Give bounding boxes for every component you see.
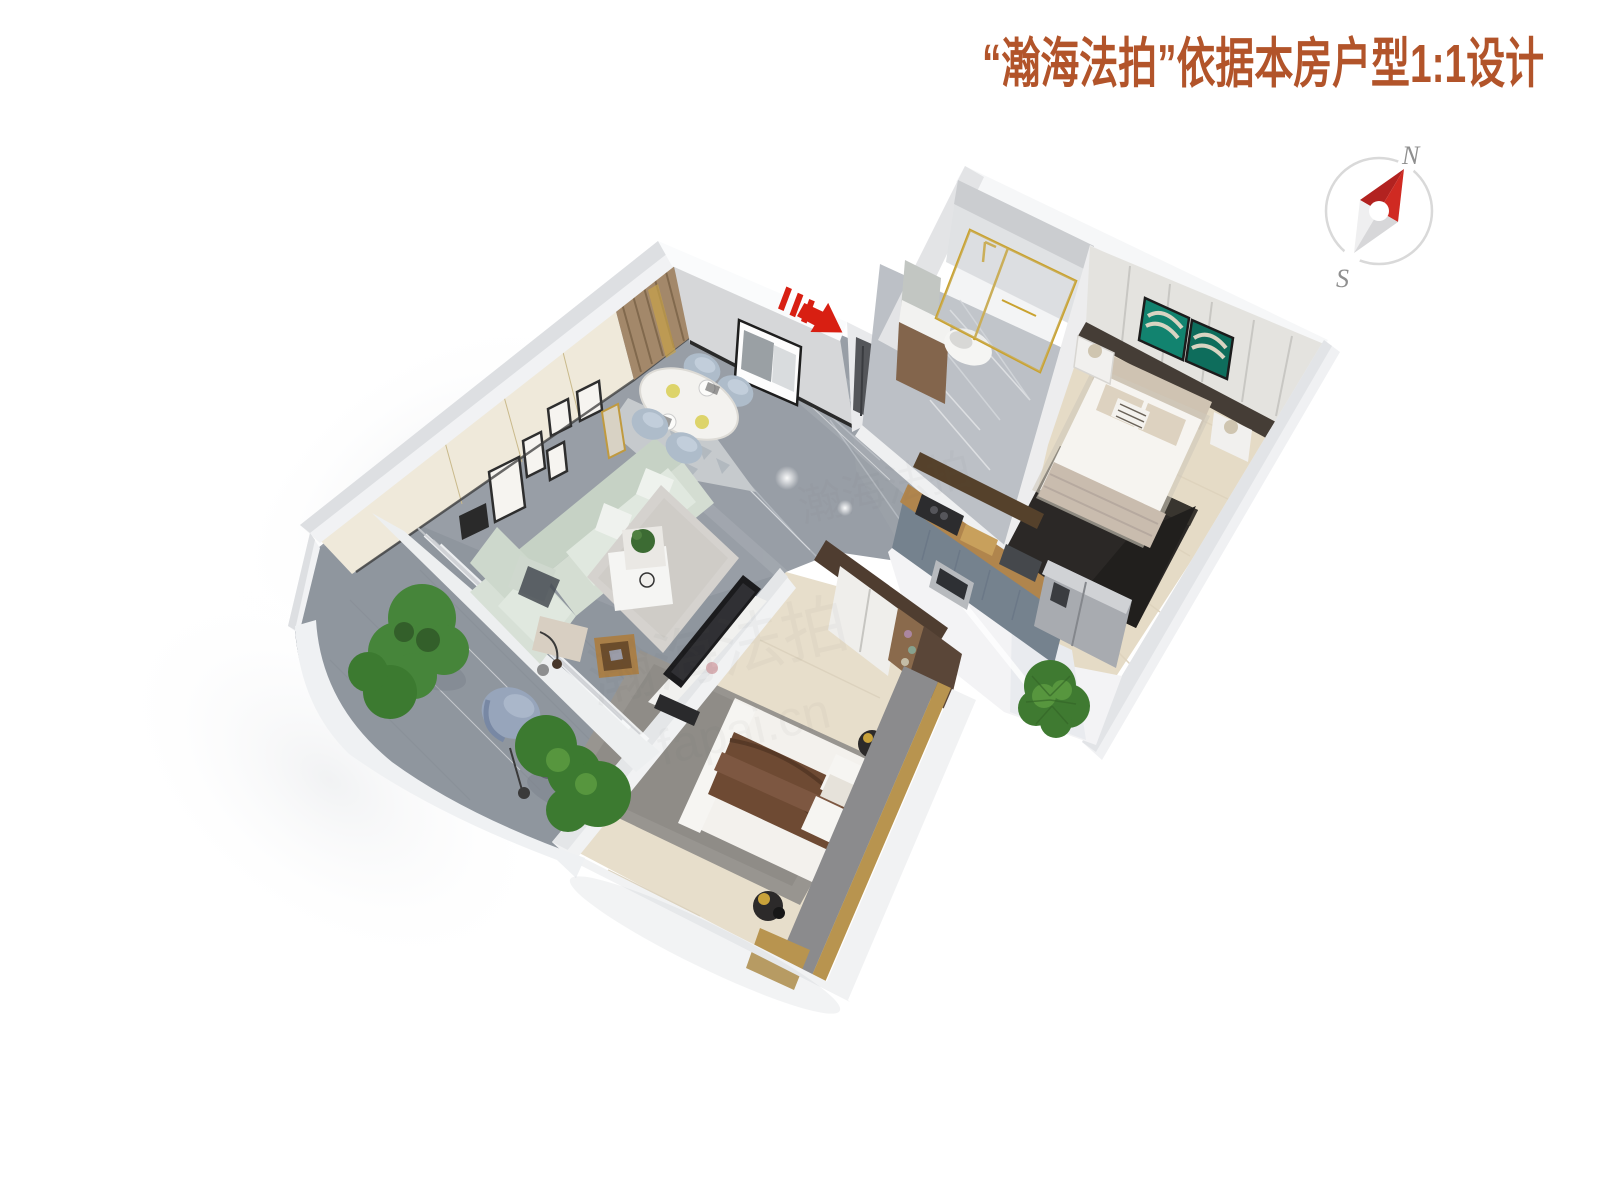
svg-text:S: S <box>1336 264 1349 293</box>
svg-text:“瀚海法拍”依据本房户型1:1设计: “瀚海法拍”依据本房户型1:1设计 <box>982 34 1544 94</box>
svg-text:N: N <box>1401 141 1421 170</box>
